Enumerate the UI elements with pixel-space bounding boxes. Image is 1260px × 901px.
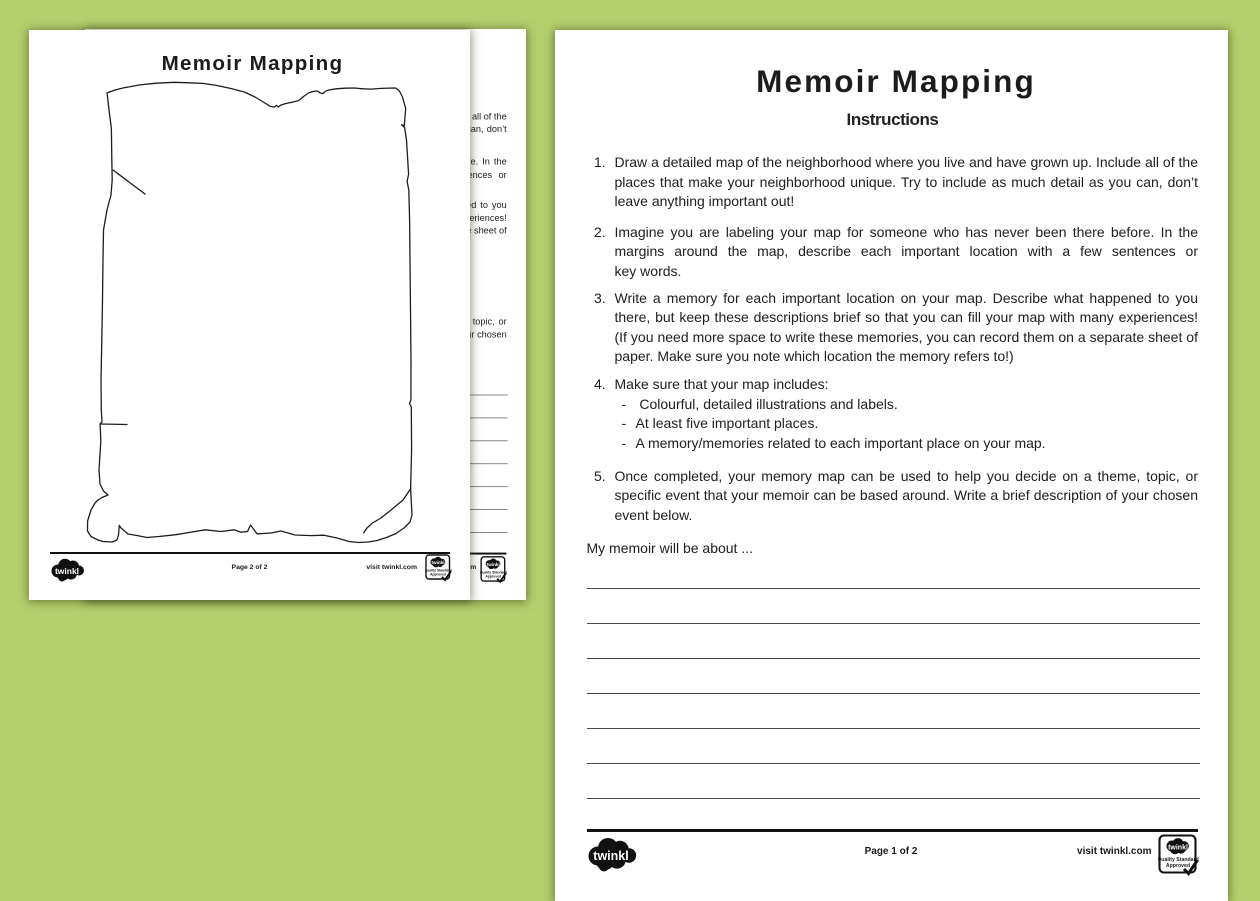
svg-text:Approved: Approved <box>1165 863 1189 869</box>
svg-text:twinkl: twinkl <box>431 560 444 565</box>
svg-text:Approved: Approved <box>430 573 446 577</box>
svg-text:Approved: Approved <box>485 574 501 578</box>
svg-text:twinkl: twinkl <box>1168 844 1188 851</box>
svg-text:twinkl: twinkl <box>487 562 500 567</box>
svg-text:Quality Standard: Quality Standard <box>480 570 507 574</box>
